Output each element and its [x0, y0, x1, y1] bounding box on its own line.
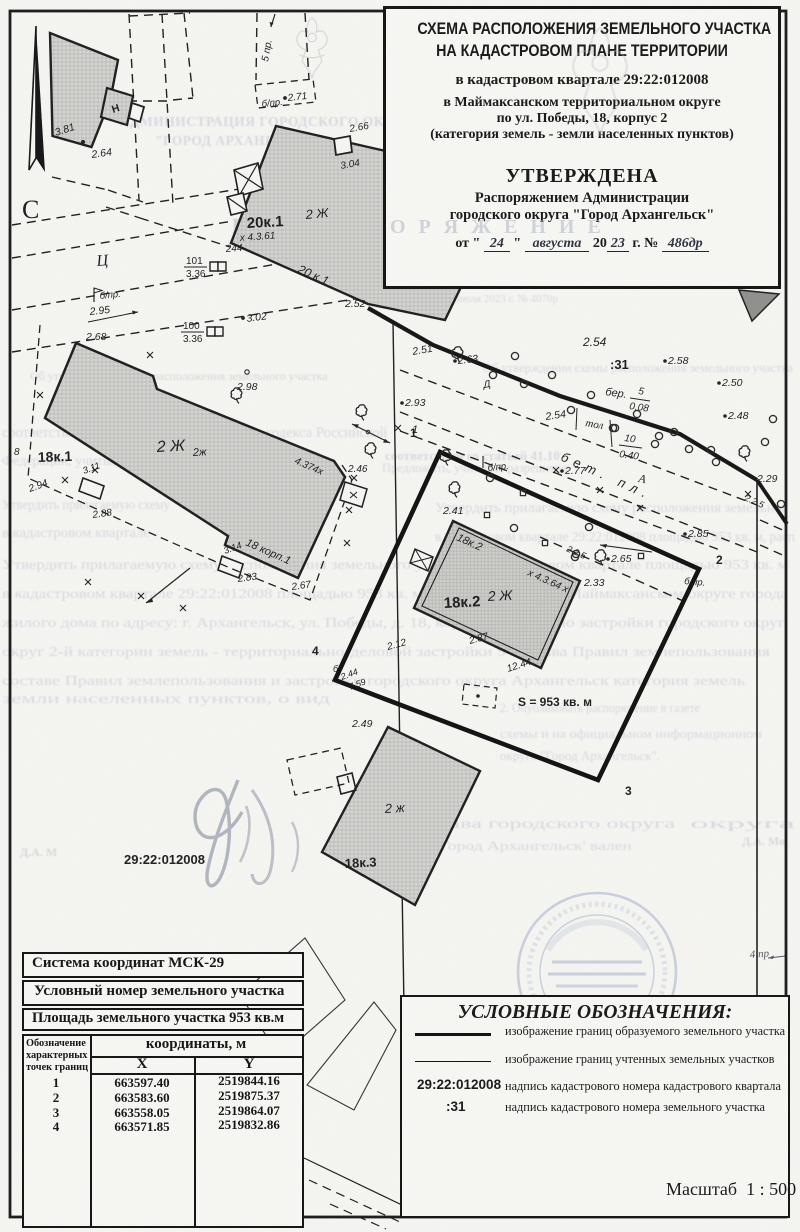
svg-text:0.08: 0.08 [629, 401, 650, 415]
svg-text:2.51: 2.51 [410, 343, 433, 359]
svg-text:б/пр.: б/пр. [99, 289, 121, 302]
svg-text:2ж: 2ж [192, 446, 208, 459]
svg-text:2.52: 2.52 [344, 298, 366, 310]
svg-text:в кадастровом квартале: в кадастровом квартале [2, 525, 150, 540]
svg-text:1: 1 [412, 424, 418, 436]
svg-text:4 пр: 4 пр [749, 948, 770, 961]
svg-text:2.49: 2.49 [351, 718, 373, 730]
svg-text:АДМИНИСТРАЦИЯ ГОРОДСКОГО ОКРУГ: АДМИНИСТРАЦИЯ ГОРОДСКОГО ОКРУГА [120, 114, 421, 129]
svg-text:2.54: 2.54 [582, 335, 607, 349]
svg-text:5 пр.: 5 пр. [260, 39, 275, 63]
svg-text:2: 2 [716, 553, 723, 567]
svg-text:А: А [636, 471, 647, 486]
svg-text:Глава городского округа: Глава городского округа [425, 817, 676, 832]
svg-text:2.46: 2.46 [347, 464, 368, 475]
svg-text:101: 101 [186, 256, 203, 267]
svg-text:2 Ж: 2 Ж [155, 437, 186, 456]
svg-text:3.36: 3.36 [186, 269, 206, 280]
svg-text:бер.: бер. [605, 386, 628, 401]
svg-text:2 Ж: 2 Ж [304, 205, 330, 222]
svg-text:Ц: Ц [95, 252, 110, 270]
svg-text:2.64: 2.64 [90, 146, 113, 161]
svg-text:100: 100 [183, 321, 200, 332]
svg-text:0.40: 0.40 [619, 449, 640, 463]
svg-text:10: 10 [624, 433, 637, 446]
svg-text:жилого дома по адресу: г. Арха: жилого дома по адресу: г. Архангельск, у… [1, 615, 786, 630]
svg-text:2.88: 2.88 [91, 507, 113, 521]
svg-text:Об утверждении схемы расположе: Об утверждении схемы расположения земель… [483, 361, 793, 375]
svg-text:б/пр.: б/пр. [487, 461, 509, 474]
svg-text:тол: тол [584, 417, 604, 432]
svg-text:2.33: 2.33 [583, 577, 605, 589]
svg-text:схемы и на официальном информа: схемы и на официальном информационном [500, 726, 762, 741]
svg-text:Д.А. М: Д.А. М [20, 845, 57, 859]
svg-text:18к.3: 18к.3 [344, 854, 377, 871]
svg-text:2.63: 2.63 [456, 353, 479, 367]
svg-text:2.68: 2.68 [85, 331, 107, 343]
svg-text:2 Ж: 2 Ж [486, 587, 513, 604]
svg-text:составе Правил землепользовани: составе Правил землепользования и застро… [2, 673, 745, 688]
svg-text:2.98: 2.98 [236, 381, 258, 393]
svg-text:18к.1: 18к.1 [38, 448, 73, 465]
svg-text:Утвердить прилагаемую схему: Утвердить прилагаемую схему [2, 497, 170, 512]
svg-text:2.71: 2.71 [286, 91, 308, 104]
svg-text:2.65: 2.65 [610, 553, 632, 565]
svg-text:244: 244 [224, 243, 243, 255]
svg-text:С: С [22, 195, 39, 224]
svg-text:Д.А. Мо: Д.А. Мо [742, 834, 785, 848]
svg-text:5: 5 [638, 386, 645, 398]
svg-text:Д: Д [482, 379, 492, 391]
svg-text:4: 4 [312, 644, 319, 658]
svg-text:в кадастровом квартале 29:22:0: в кадастровом квартале 29:22:012008 площ… [2, 586, 788, 601]
svg-text:2.66: 2.66 [348, 121, 370, 135]
svg-text:8: 8 [14, 447, 20, 458]
svg-text:20к.1: 20к.1 [246, 213, 284, 232]
svg-text:3.36: 3.36 [183, 334, 203, 345]
svg-text:б/пр.: б/пр. [261, 97, 283, 110]
svg-text:Утвердить прилагаемую схему ра: Утвердить прилагаемую схему расположения… [2, 557, 789, 572]
svg-text:округа: округа [690, 817, 797, 832]
svg-text:2.50: 2.50 [721, 377, 743, 389]
svg-text:2.95: 2.95 [88, 304, 111, 318]
svg-text:"Город Архангельск' вален: "Город Архангельск' вален [432, 838, 632, 853]
svg-text:2.93: 2.93 [404, 397, 426, 409]
svg-text::31: :31 [610, 357, 629, 372]
svg-text:2.41: 2.41 [442, 505, 463, 517]
svg-text:2.29: 2.29 [756, 473, 778, 485]
svg-text:2.54: 2.54 [544, 408, 567, 423]
svg-text:2.83: 2.83 [236, 571, 258, 585]
svg-text:3.02: 3.02 [246, 310, 268, 325]
svg-text:29:22:012008: 29:22:012008 [124, 852, 205, 867]
svg-text:3: 3 [625, 784, 632, 798]
svg-text:18к.2: 18к.2 [443, 593, 481, 612]
svg-text:2.85: 2.85 [687, 528, 709, 540]
svg-text:2.58: 2.58 [667, 355, 689, 367]
svg-text:земли населенных пунктов, о ви: земли населенных пунктов, о вид [2, 691, 330, 706]
svg-text:2 ж: 2 ж [383, 800, 406, 816]
svg-text:б пр.: б пр. [684, 576, 706, 589]
svg-text:S = 953 кв. м: S = 953 кв. м [518, 695, 592, 709]
svg-text:2.48: 2.48 [727, 410, 749, 422]
